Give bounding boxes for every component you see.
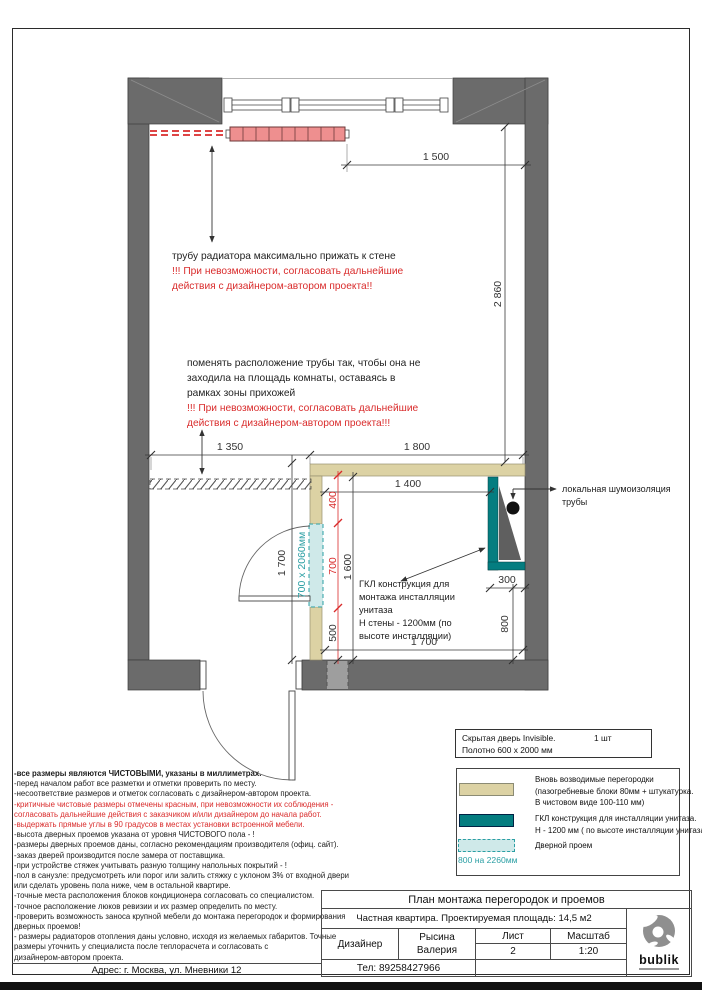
- note-line: -при устройстве стяжек учитывать разную …: [14, 861, 322, 871]
- svg-text:заходила на площадь комнаты, о: заходила на площадь комнаты, оставаясь в: [187, 373, 395, 384]
- svg-text:трубу радиатора максимально пр: трубу радиатора максимально прижать к ст…: [172, 250, 396, 262]
- radiator-note: трубу радиатора максимально прижать к ст…: [172, 250, 404, 292]
- svg-text:ГКЛ конструкция для: ГКЛ конструкция для: [359, 579, 449, 589]
- legend-swatch-install: [459, 814, 514, 827]
- svg-text:монтажа инсталляции: монтажа инсталляции: [359, 592, 455, 602]
- svg-text:поменять расположение трубы та: поменять расположение трубы так, чтобы о…: [187, 357, 421, 369]
- bublik-logo-icon: [638, 912, 680, 954]
- note-line: -точное расположение люков ревизии и их …: [14, 902, 322, 912]
- svg-text:1 500: 1 500: [423, 151, 449, 163]
- gkl-note: ГКЛ конструкция для монтажа инсталляции …: [359, 579, 455, 641]
- svg-text:!!! При невозможности, согласо: !!! При невозможности, согласовать дальн…: [172, 266, 404, 277]
- svg-text:!!! При невозможности, согласо: !!! При невозможности, согласовать дальн…: [187, 403, 419, 414]
- svg-text:500: 500: [327, 624, 339, 642]
- legend-text: ГКЛ конструкция для инсталляции унитаза.: [535, 814, 696, 823]
- note-line: -высота дверных проемов указана от уровн…: [14, 830, 322, 840]
- logo-cell: bublik: [626, 909, 691, 976]
- scale-value: 1:20: [551, 944, 626, 959]
- designer-name: Рысина Валерия: [399, 929, 476, 959]
- svg-text:1 700: 1 700: [276, 550, 288, 576]
- legend-text: Дверной проем: [535, 841, 592, 850]
- note-line: -проверить возможность заноса крупной ме…: [14, 912, 322, 922]
- note-line: -критичные чистовые размеры отмечены кра…: [14, 800, 322, 810]
- note-line: размеры уточнить у специалиста после теп…: [14, 942, 322, 952]
- window: [222, 79, 453, 113]
- former-opening: [327, 661, 348, 689]
- note-line: согласовать дальнейшие действия с заказч…: [14, 810, 322, 820]
- svg-text:трубы: трубы: [562, 497, 587, 507]
- legend-text: В чистовом виде 100-110 мм): [535, 798, 644, 807]
- svg-text:400: 400: [327, 491, 339, 509]
- notes-list: -все размеры являются ЧИСТОВЫМИ, указаны…: [14, 769, 322, 963]
- dimension-1400: 1 400: [320, 478, 494, 496]
- radiator: [226, 127, 349, 141]
- pipe-note: поменять расположение трубы так, чтобы о…: [187, 357, 421, 429]
- dimension-300: 300: [486, 574, 529, 592]
- svg-text:действия с дизайнером-автором: действия с дизайнером-автором проекта!!!: [187, 418, 390, 429]
- phone: Тел: 89258427966: [322, 959, 476, 976]
- title-block: План монтажа перегородок и проемов Частн…: [321, 890, 692, 977]
- svg-text:1 600: 1 600: [342, 554, 354, 580]
- note-line: дизайнером-автором проекта.: [14, 953, 322, 963]
- legend-text: (пазогребневые блоки 80мм + штукатурка.: [535, 787, 693, 796]
- note-line: -размеры дверных проемов даны, согласно …: [14, 840, 322, 850]
- legend-text: Вновь возводимые перегородки: [535, 775, 654, 784]
- svg-text:Н стены - 1200мм (по: Н стены - 1200мм (по: [359, 618, 452, 628]
- svg-text:рамках зоны прихожей: рамках зоны прихожей: [187, 388, 295, 399]
- hatch-strip: [150, 479, 311, 489]
- designer-last: Валерия: [417, 944, 457, 957]
- legend-swatch-opening: [458, 839, 515, 852]
- svg-text:1 400: 1 400: [395, 478, 421, 490]
- svg-text:800: 800: [499, 615, 511, 633]
- door-spec-qty: 1 шт: [594, 733, 612, 743]
- note-line: -заказ дверей производится после замера …: [14, 851, 322, 861]
- sheet-value: 2: [476, 944, 551, 959]
- door-spec-leaf: Полотно 600 x 2000 мм: [462, 745, 553, 755]
- note-line: -перед началом работ все разметки и отме…: [14, 779, 322, 789]
- bath-door-opening: [309, 524, 323, 607]
- bath-door-size-label: 700 x 2060мм: [296, 532, 308, 598]
- drawing-title: План монтажа перегородок и проемов: [322, 891, 691, 909]
- sheet-label: Лист: [476, 929, 551, 944]
- drawing-page: 1 500 2 860 1 350 1 800 1 400: [0, 0, 702, 990]
- svg-text:700: 700: [327, 557, 339, 575]
- door-spec-name: Скрытая дверь Invisible.: [462, 733, 555, 743]
- note-line: - размеры радиаторов отопления даны усло…: [14, 932, 322, 942]
- pipe-circle: [507, 502, 520, 515]
- legend-opening-size: 800 на 2260мм: [458, 855, 518, 865]
- scan-edge-bar: [0, 982, 702, 990]
- entry-door: [200, 661, 302, 780]
- drawing-subtitle: Частная квартира. Проектируемая площадь:…: [322, 909, 626, 929]
- note-line: -несоответствие размеров и отметок согла…: [14, 789, 322, 799]
- empty-cell: [476, 959, 626, 976]
- dimension-800: 800: [499, 584, 517, 664]
- note-line: -все размеры являются ЧИСТОВЫМИ, указаны…: [14, 769, 322, 779]
- svg-text:1 800: 1 800: [404, 441, 430, 453]
- note-line: дверных проемов!: [14, 922, 322, 932]
- toilet-installation: [488, 477, 525, 570]
- note-line: -точные места расположения блоков кондиц…: [14, 891, 322, 901]
- gkl-arrow: [401, 548, 485, 581]
- svg-text:локальная шумоизоляция: локальная шумоизоляция: [562, 484, 671, 494]
- designer-label: Дизайнер: [322, 929, 399, 959]
- svg-text:действия с дизайнером-автором: действия с дизайнером-автором проекта!!: [172, 281, 372, 292]
- svg-text:1 350: 1 350: [217, 441, 243, 453]
- scale-label: Масштаб: [551, 929, 626, 944]
- dimension-1600: 1 600: [342, 472, 357, 664]
- dimension-2860: 2 860: [492, 123, 509, 466]
- note-line: -пол в санузле: предусмотреть или порог …: [14, 871, 322, 881]
- door-spec-box: Скрытая дверь Invisible. 1 шт Полотно 60…: [455, 729, 652, 758]
- logo-text: bublik: [639, 954, 679, 966]
- note-line: или сделать уровень пола ниже, чем в ост…: [14, 881, 322, 891]
- dimension-1500: 1 500: [341, 144, 531, 172]
- designer-first: Рысина: [419, 931, 455, 944]
- svg-text:2 860: 2 860: [492, 281, 504, 307]
- dimension-red-chain: 400 700 500: [327, 471, 342, 664]
- sound-note: локальная шумоизоляция трубы: [562, 484, 671, 507]
- logo-subtext-line: [639, 968, 679, 970]
- legend-box: Вновь возводимые перегородки (пазогребне…: [456, 768, 680, 876]
- svg-text:высоте инсталляции): высоте инсталляции): [359, 631, 451, 641]
- svg-text:унитаза: унитаза: [359, 605, 393, 615]
- legend-text: Н - 1200 мм ( по высоте инсталляции унит…: [535, 826, 702, 835]
- radiator-pipe: [150, 131, 227, 135]
- note-line: -выдержать прямые углы в 90 градусов в м…: [14, 820, 322, 830]
- address-row: Адрес: г. Москва, ул. Мневники 12: [12, 963, 321, 977]
- legend-swatch-partition: [459, 783, 514, 796]
